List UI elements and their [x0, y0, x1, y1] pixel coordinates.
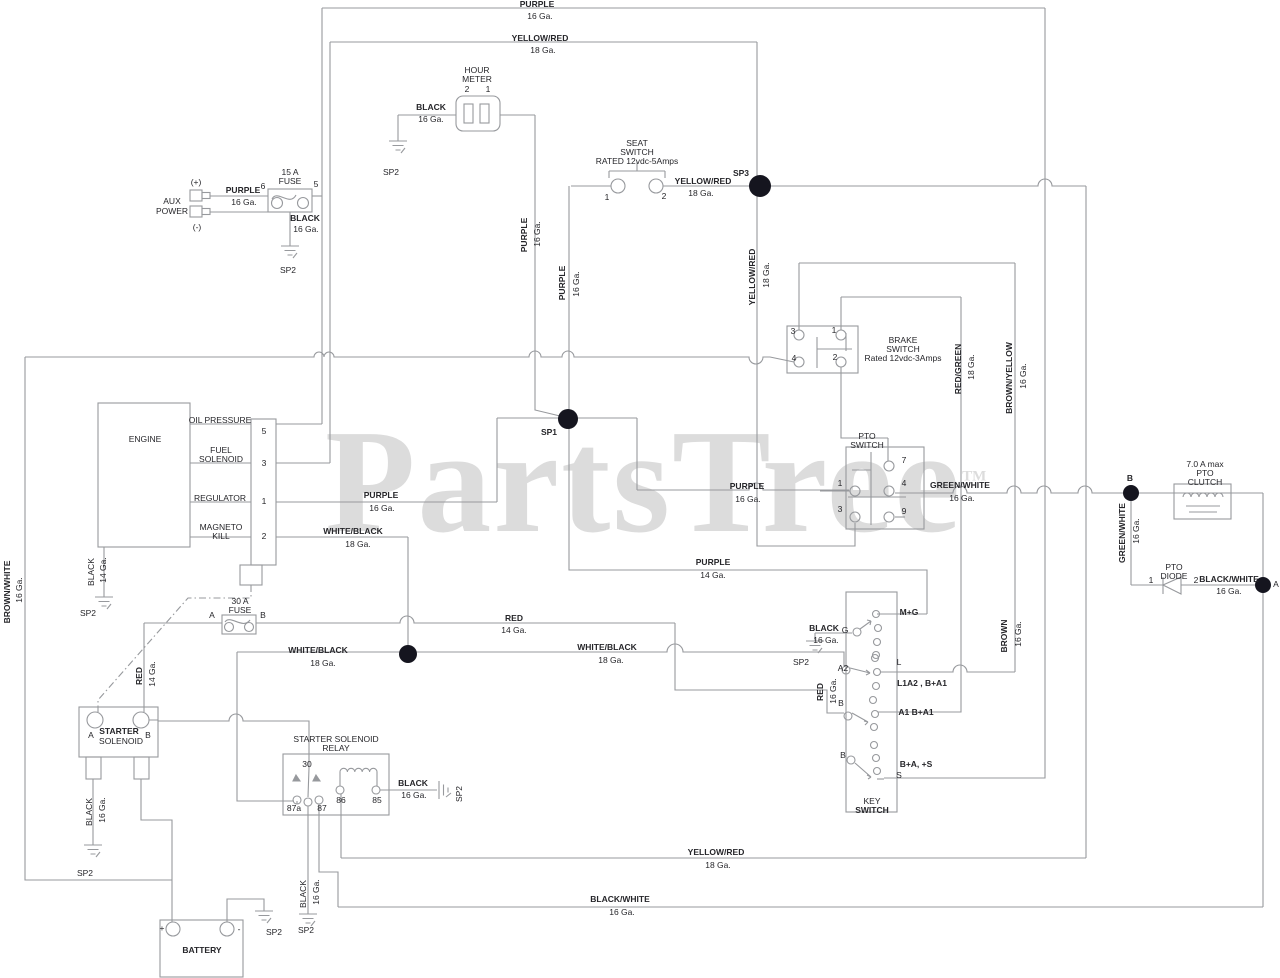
starter-solenoid-relay — [283, 754, 437, 914]
wire-purple-pto-row — [637, 483, 849, 490]
ground-engine — [95, 597, 113, 609]
wire-row-357 — [25, 351, 794, 364]
fuse-30a — [222, 615, 256, 634]
pto-switch — [820, 447, 924, 529]
wire-whiteblack-row — [237, 644, 844, 666]
junction-dots — [399, 175, 1271, 663]
wire-seat-row — [571, 179, 1086, 186]
ground-battery-minus — [255, 911, 273, 923]
ground-aux — [281, 246, 299, 258]
junction-sp1 — [558, 409, 578, 429]
brake-switch — [787, 263, 858, 373]
junction-sp3 — [749, 175, 771, 197]
starter-solenoid — [79, 623, 172, 922]
wiring-diagram-page: PartsTreeTM — [0, 0, 1280, 978]
seat-switch — [609, 162, 665, 193]
ground-solenoid — [84, 845, 102, 857]
ground-relay-30 — [299, 914, 317, 926]
junction-b — [1123, 485, 1139, 501]
engine-box — [98, 403, 497, 712]
wire-brownyellow-row — [799, 263, 1015, 297]
pto-diode — [1131, 577, 1255, 594]
junction-a — [1255, 577, 1271, 593]
wire-red-14ga-row — [144, 616, 675, 623]
ground-hour-meter — [389, 141, 407, 153]
pto-clutch — [1174, 484, 1231, 519]
wire-verticals — [25, 8, 1263, 907]
wire-greenwhite-row — [895, 486, 1263, 493]
battery — [160, 899, 264, 977]
hour-meter — [398, 96, 535, 141]
schematic-wires — [0, 0, 1280, 978]
junction-whiteblack — [399, 645, 417, 663]
ground-relay-85 — [439, 781, 451, 799]
wire-keyswitch-l-row — [881, 665, 1015, 672]
ground-key-switch — [806, 641, 824, 653]
fuse-15a — [268, 189, 322, 212]
wire-solenoid-relay-row — [158, 714, 309, 768]
